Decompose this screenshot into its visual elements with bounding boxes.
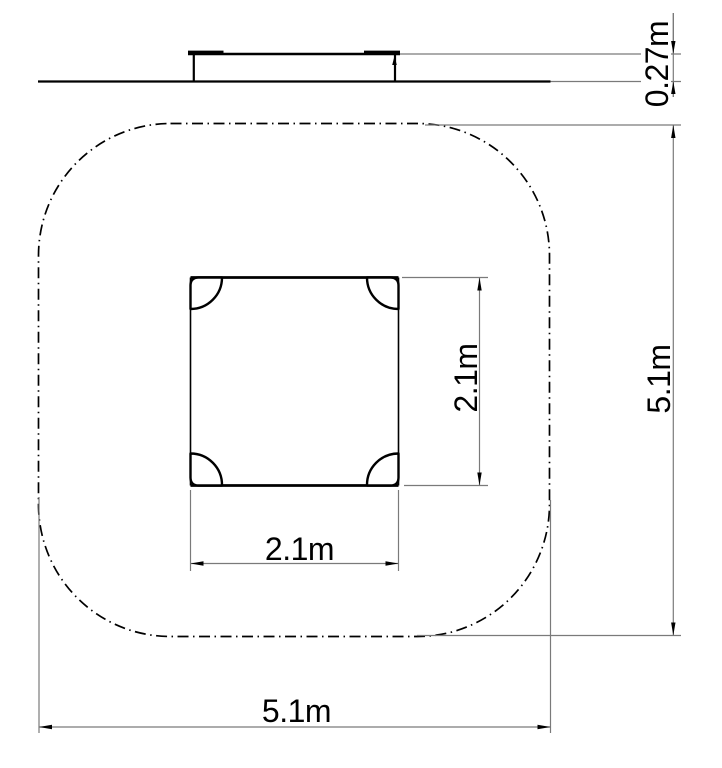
corner-posts — [191, 278, 399, 486]
corner-post-top-left — [191, 278, 223, 310]
platform-width-dimension: 2.1m — [191, 490, 399, 571]
plan-view: 2.1m 2.1m 5.1m — [39, 124, 682, 734]
arrowhead-left — [39, 725, 52, 729]
arrowhead-down — [477, 473, 481, 486]
platform-width-label: 2.1m — [265, 531, 334, 567]
platform-plan-outline — [191, 278, 399, 486]
side-view: 0.27m — [38, 13, 681, 113]
platform-tick-arrow — [392, 56, 397, 65]
arrowhead-up — [671, 125, 675, 138]
arrowhead-right — [386, 561, 399, 565]
platform-side-outline — [188, 53, 400, 82]
zone-depth-label: 5.1m — [641, 344, 677, 413]
arrowhead-left — [191, 561, 204, 565]
corner-post-bottom-right — [367, 454, 399, 486]
zone-width-label: 5.1m — [262, 693, 331, 729]
height-dimension-label: 0.27m — [639, 21, 675, 107]
arrowhead-up — [477, 278, 481, 291]
technical-drawing: 0.27m — [0, 0, 722, 768]
corner-post-top-right — [367, 278, 399, 310]
arrowhead-down — [671, 623, 675, 636]
arrowhead-right — [538, 725, 551, 729]
platform-depth-label: 2.1m — [448, 343, 484, 412]
corner-post-bottom-left — [191, 454, 223, 486]
technical-drawing-svg: 0.27m — [0, 0, 722, 768]
platform-depth-dimension: 2.1m — [402, 278, 488, 486]
height-dimension: 0.27m — [639, 13, 676, 113]
